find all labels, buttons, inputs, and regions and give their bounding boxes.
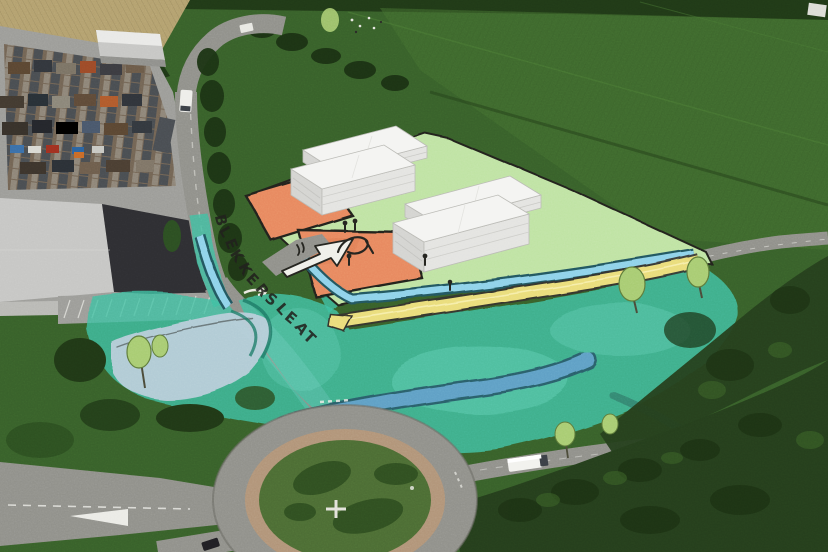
aerial-concept-sketch: BLEKKERSLEAT bbox=[0, 0, 828, 552]
photo-grain-overlay bbox=[0, 0, 828, 552]
scene-canvas: BLEKKERSLEAT bbox=[0, 0, 828, 552]
